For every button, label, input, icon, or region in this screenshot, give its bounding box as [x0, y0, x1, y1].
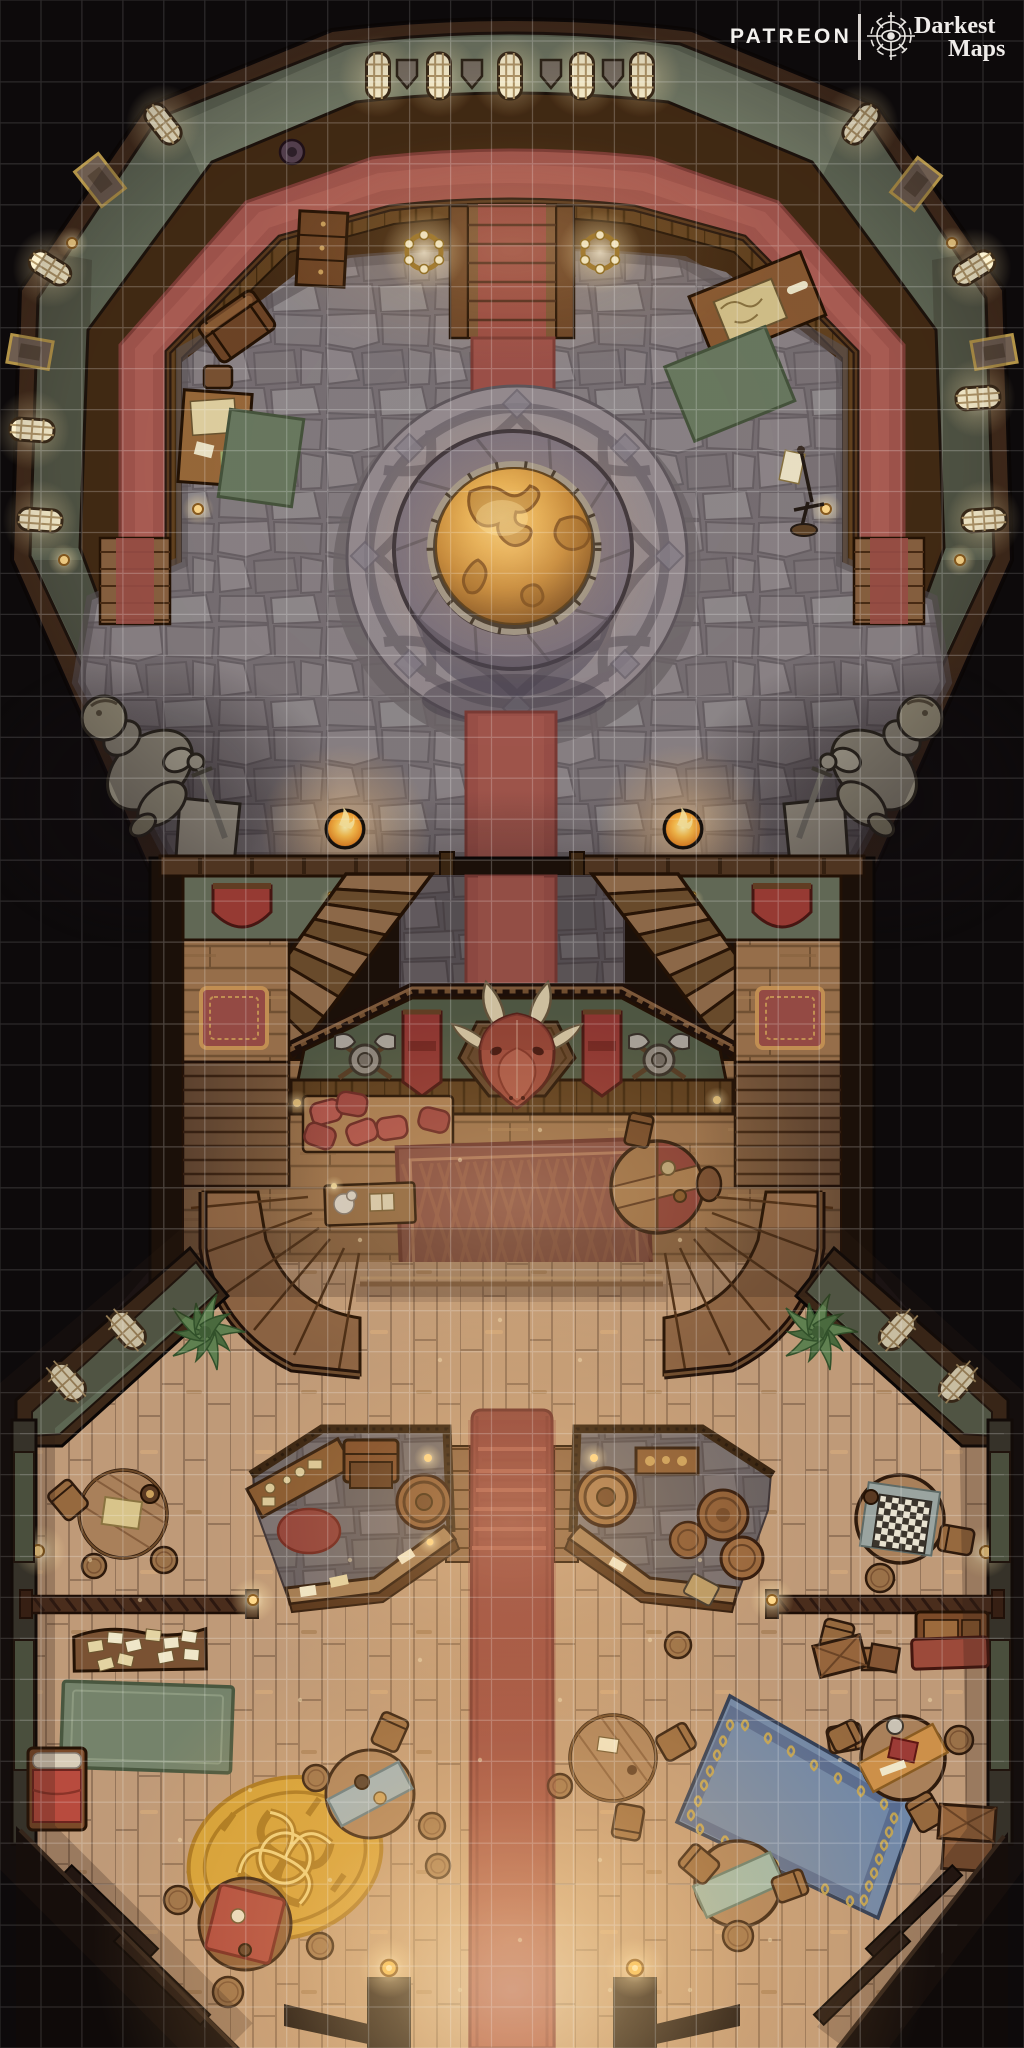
- svg-text:PATREON: PATREON: [730, 25, 852, 48]
- svg-text:Maps: Maps: [948, 36, 1005, 62]
